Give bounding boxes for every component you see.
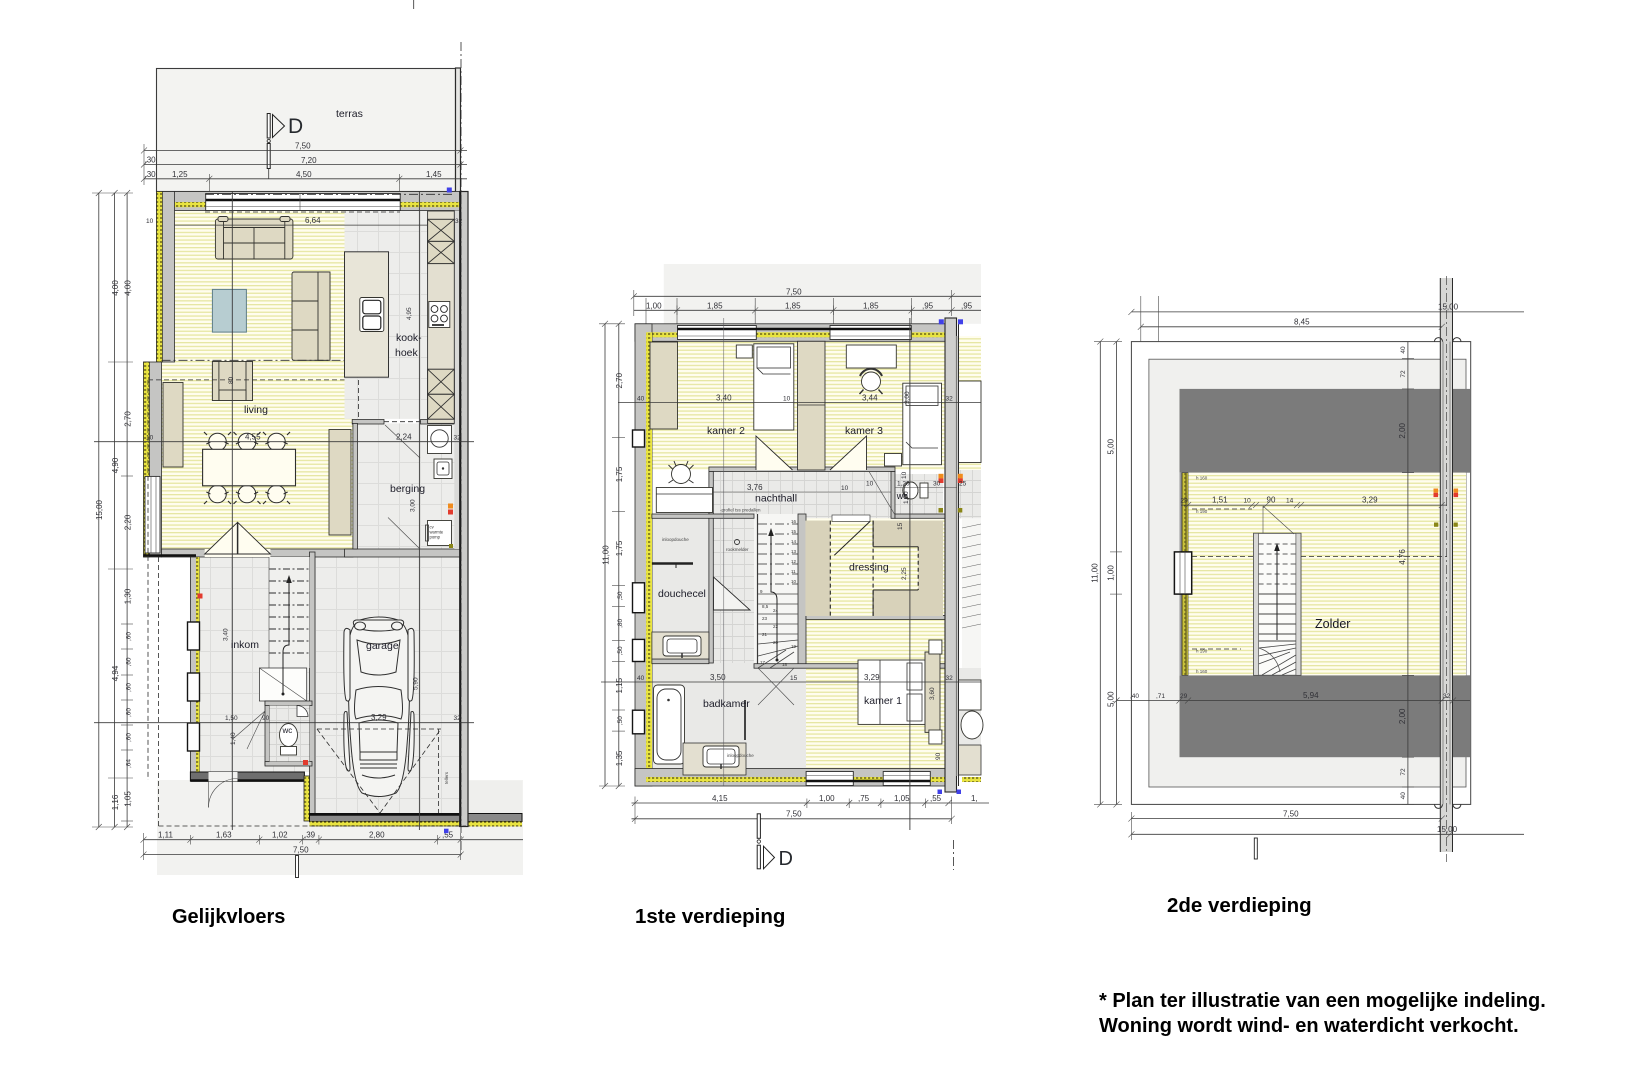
svg-text:,50: ,50 (617, 591, 624, 600)
svg-text:29: 29 (1181, 498, 1189, 505)
svg-text:inkom: inkom (231, 639, 259, 651)
svg-text:terras: terras (336, 108, 363, 120)
svg-text:40: 40 (1400, 792, 1407, 800)
svg-text:14: 14 (791, 539, 797, 544)
svg-text:4,15: 4,15 (712, 794, 728, 803)
svg-text:18: 18 (782, 662, 788, 667)
svg-text:,71: ,71 (1156, 693, 1165, 700)
svg-text:90: 90 (935, 752, 942, 760)
svg-text:20: 20 (773, 640, 779, 645)
svg-text:,40: ,40 (1130, 693, 1139, 700)
svg-text:1,75: 1,75 (615, 466, 624, 482)
svg-text:garage: garage (366, 640, 399, 652)
svg-text:2,24: 2,24 (396, 433, 412, 442)
svg-text:Gelijkvloers: Gelijkvloers (172, 906, 285, 928)
svg-text:h 160: h 160 (1196, 476, 1208, 481)
svg-text:pomp: pomp (430, 535, 441, 540)
svg-text:nachthall: nachthall (755, 493, 797, 505)
svg-text:72: 72 (1400, 370, 1407, 378)
svg-text:,64: ,64 (126, 759, 133, 768)
svg-text:1,00: 1,00 (819, 794, 835, 803)
svg-text:,60: ,60 (126, 708, 133, 717)
svg-text:4,55: 4,55 (245, 433, 261, 442)
svg-text:32: 32 (946, 395, 954, 402)
svg-text:32: 32 (454, 435, 462, 442)
svg-text:14: 14 (1286, 498, 1294, 505)
svg-text:Zolder: Zolder (1315, 617, 1350, 631)
svg-text:4,94: 4,94 (111, 665, 120, 681)
svg-text:Woning wordt wind- en waterdic: Woning wordt wind- en waterdicht verkoch… (1099, 1015, 1519, 1037)
svg-text:berging: berging (390, 483, 425, 495)
svg-text:15: 15 (897, 522, 904, 530)
svg-text:,30: ,30 (145, 156, 157, 165)
svg-text:wc: wc (282, 726, 293, 735)
svg-text:25: 25 (959, 481, 967, 488)
svg-text:,60: ,60 (126, 632, 133, 641)
svg-text:1,45: 1,45 (426, 170, 442, 179)
svg-text:dressing: dressing (849, 562, 889, 574)
svg-text:2,20: 2,20 (124, 514, 133, 530)
svg-text:22: 22 (773, 624, 779, 629)
svg-text:4,76: 4,76 (1398, 549, 1407, 565)
svg-text:,50: ,50 (617, 646, 624, 655)
svg-text:douchecel: douchecel (658, 588, 706, 600)
svg-text:1,63: 1,63 (216, 831, 232, 840)
svg-text:72: 72 (1400, 768, 1407, 776)
svg-text:7,20: 7,20 (301, 156, 317, 165)
svg-text:,95: ,95 (961, 301, 973, 310)
svg-text:1,00: 1,00 (646, 301, 662, 310)
svg-text:40: 40 (637, 395, 645, 402)
svg-text:8,5: 8,5 (762, 604, 769, 609)
svg-text:32: 32 (455, 218, 463, 225)
svg-text:2,70: 2,70 (124, 411, 133, 427)
svg-text:* Plan ter illustratie van een: * Plan ter illustratie van een mogelijke… (1099, 990, 1546, 1012)
svg-text:11,00: 11,00 (602, 545, 611, 565)
svg-text:23: 23 (762, 616, 768, 621)
svg-text:19: 19 (791, 644, 797, 649)
svg-text:h 190: h 190 (1196, 649, 1208, 654)
svg-text:32: 32 (1443, 693, 1451, 700)
svg-text:10: 10 (841, 485, 849, 492)
svg-text:1,50: 1,50 (225, 715, 238, 722)
svg-text:1,85: 1,85 (707, 301, 723, 310)
svg-text:1,00: 1,00 (1107, 565, 1116, 581)
svg-text:24: 24 (773, 608, 779, 613)
svg-text:4,90: 4,90 (111, 457, 120, 473)
svg-text:rookmelder: rookmelder (726, 547, 749, 552)
svg-text:10: 10 (901, 471, 908, 479)
svg-text:12: 12 (791, 559, 797, 564)
svg-text:90: 90 (1267, 496, 1276, 505)
svg-text:wc: wc (896, 491, 908, 501)
svg-text:1,51: 1,51 (1212, 496, 1228, 505)
svg-text:2,00: 2,00 (1398, 422, 1407, 438)
svg-text:10: 10 (783, 395, 791, 402)
svg-text:11,00: 11,00 (1091, 563, 1100, 583)
svg-text:1,11: 1,11 (158, 831, 174, 840)
svg-text:1,25: 1,25 (172, 170, 188, 179)
svg-text:1,75: 1,75 (615, 540, 624, 556)
svg-text:1,: 1, (971, 794, 978, 803)
svg-text:17: 17 (760, 660, 766, 665)
svg-text:1,35: 1,35 (615, 750, 624, 766)
svg-text:2,00: 2,00 (1398, 708, 1407, 724)
svg-text:7,50: 7,50 (1283, 809, 1299, 818)
svg-text:90: 90 (262, 715, 270, 722)
svg-text:2,80: 2,80 (369, 831, 385, 840)
svg-text:,95: ,95 (922, 301, 934, 310)
svg-text:5,00: 5,00 (1107, 438, 1116, 454)
svg-text:10: 10 (791, 579, 797, 584)
svg-text:3,60: 3,60 (929, 687, 936, 700)
svg-text:15,00: 15,00 (95, 499, 104, 520)
svg-text:1,02: 1,02 (272, 831, 288, 840)
svg-text:7,50: 7,50 (295, 142, 311, 151)
svg-text:1,85: 1,85 (863, 301, 879, 310)
svg-text:kamer 3: kamer 3 (845, 425, 883, 437)
svg-text:,75: ,75 (858, 794, 870, 803)
svg-text:D: D (779, 848, 793, 870)
svg-text:,80: ,80 (617, 619, 624, 628)
svg-text:1,05: 1,05 (894, 794, 910, 803)
svg-text:h 160: h 160 (1196, 669, 1208, 674)
svg-text:4,95: 4,95 (406, 307, 413, 320)
svg-text:,55: ,55 (930, 794, 942, 803)
svg-text:21: 21 (762, 632, 768, 637)
svg-text:1,30: 1,30 (124, 588, 133, 604)
svg-text:4,00: 4,00 (124, 280, 133, 296)
svg-text:10: 10 (146, 218, 154, 225)
svg-text:13: 13 (791, 549, 797, 554)
svg-text:15: 15 (791, 529, 797, 534)
svg-text:15: 15 (790, 675, 798, 682)
svg-text:10: 10 (146, 435, 154, 442)
svg-text:3,76: 3,76 (747, 483, 763, 492)
svg-text:1,15: 1,15 (615, 677, 624, 693)
svg-text:1,16: 1,16 (111, 794, 120, 810)
svg-text:,60: ,60 (126, 683, 133, 692)
svg-text:D: D (288, 115, 303, 138)
svg-text:6,64: 6,64 (305, 216, 321, 225)
svg-text:living: living (244, 404, 268, 416)
svg-text:-profiel tss predallen: -profiel tss predallen (720, 508, 761, 513)
svg-text:3,29: 3,29 (371, 713, 387, 722)
svg-text:16: 16 (791, 519, 797, 524)
svg-text:inloopdouche: inloopdouche (727, 753, 754, 758)
svg-text:1,20: 1,20 (897, 481, 910, 488)
svg-text:kook-: kook- (396, 332, 422, 344)
svg-text:3,29: 3,29 (1362, 496, 1378, 505)
svg-text:5,00: 5,00 (1107, 691, 1116, 707)
svg-text:10: 10 (866, 481, 874, 488)
svg-text:badkamer: badkamer (703, 698, 750, 710)
svg-text:3,40: 3,40 (223, 628, 230, 641)
svg-text:15,00: 15,00 (1438, 302, 1459, 311)
svg-text:5,94: 5,94 (1303, 691, 1319, 700)
svg-text:kamer 2: kamer 2 (707, 425, 745, 437)
svg-text:32: 32 (946, 675, 954, 682)
svg-text:1,05: 1,05 (124, 791, 133, 807)
svg-text:30: 30 (933, 481, 941, 488)
svg-text:5,90: 5,90 (413, 677, 420, 690)
svg-text:2de verdieping: 2de verdieping (1167, 894, 1312, 917)
svg-text:tellers: tellers (444, 771, 449, 784)
svg-text:2,70: 2,70 (615, 372, 624, 388)
svg-text:8,45: 8,45 (1294, 317, 1310, 326)
svg-text:40: 40 (1400, 346, 1407, 354)
svg-text:,60: ,60 (126, 657, 133, 666)
svg-text:1ste verdieping: 1ste verdieping (635, 905, 785, 928)
svg-text:7,50: 7,50 (293, 845, 309, 854)
svg-text:15,00: 15,00 (1437, 825, 1458, 834)
svg-text:3,29: 3,29 (864, 673, 880, 682)
svg-text:40: 40 (637, 675, 645, 682)
svg-text:7,50: 7,50 (786, 287, 802, 296)
svg-text:2,25: 2,25 (901, 567, 908, 580)
svg-text:7,50: 7,50 (786, 810, 802, 819)
svg-text:3,44: 3,44 (862, 393, 878, 402)
svg-text:4,50: 4,50 (296, 170, 312, 179)
svg-text:32: 32 (454, 715, 462, 722)
svg-text:kamer 1: kamer 1 (864, 695, 902, 707)
svg-text:inloopdouche: inloopdouche (662, 537, 689, 542)
svg-text:11: 11 (791, 569, 796, 574)
svg-text:,30: ,30 (145, 170, 157, 179)
svg-text:1,85: 1,85 (785, 301, 801, 310)
svg-text:10: 10 (1244, 498, 1252, 505)
svg-text:,60: ,60 (126, 733, 133, 742)
svg-text:,50: ,50 (617, 716, 624, 725)
svg-text:hoek: hoek (395, 347, 419, 359)
svg-text:3,00: 3,00 (410, 499, 417, 512)
svg-text:4,00: 4,00 (111, 280, 120, 296)
svg-text:,39: ,39 (304, 831, 316, 840)
svg-text:3,40: 3,40 (716, 393, 732, 402)
svg-text:h 190: h 190 (1196, 509, 1208, 514)
svg-text:1,40: 1,40 (230, 732, 237, 745)
